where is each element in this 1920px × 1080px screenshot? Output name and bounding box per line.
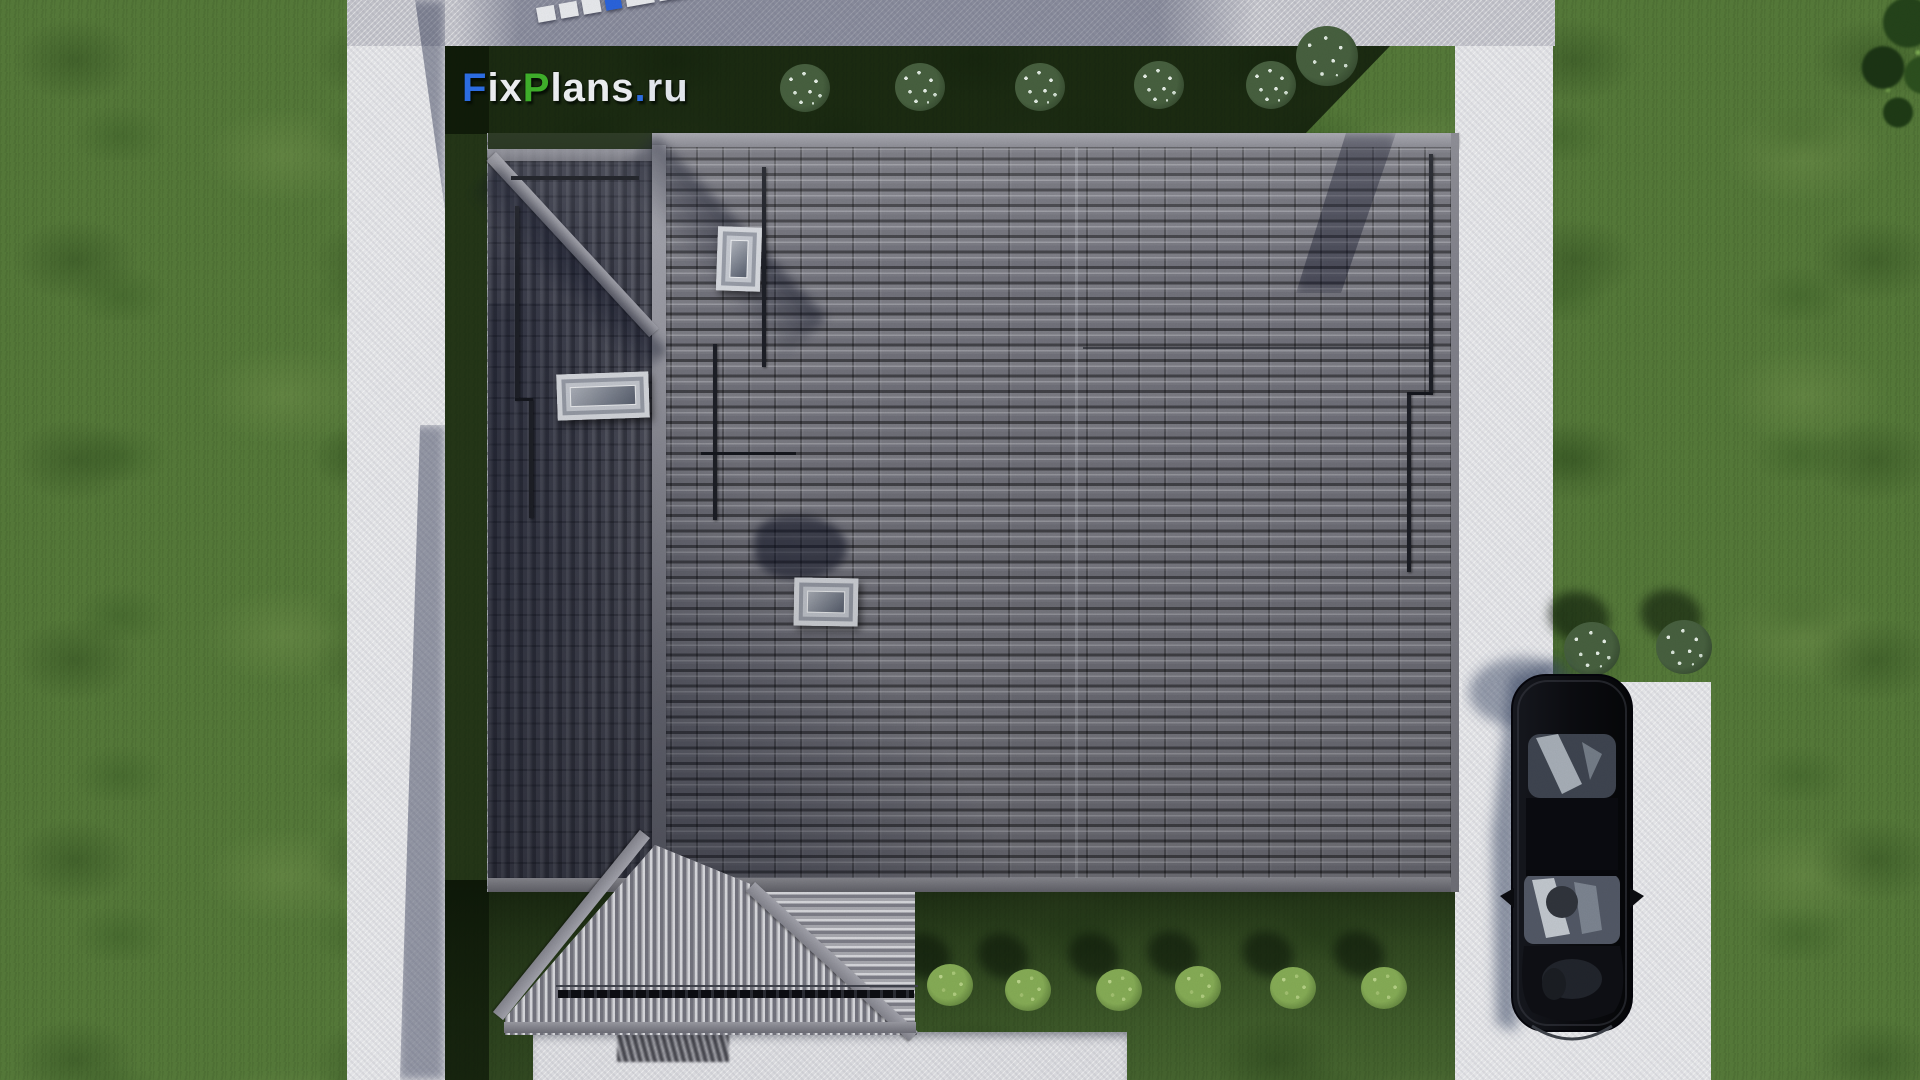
corner-tree: [1838, 0, 1920, 135]
flower-bush-top: [1134, 61, 1184, 109]
logo-letter: ix: [487, 66, 522, 110]
flower-bush-top: [780, 64, 830, 112]
flower-bush-top: [1246, 61, 1296, 109]
logo-letter: P: [523, 66, 551, 110]
porch-eave: [504, 1022, 916, 1033]
logo-letter: F: [462, 66, 487, 110]
logo-letter: ru: [647, 66, 689, 110]
logo-letter: .: [635, 66, 647, 110]
porch-snow-guard-rail: [556, 985, 918, 987]
site-render-canvas: FixPlans.ru: [0, 0, 1920, 1080]
green-bush: [1175, 966, 1221, 1008]
watermark-logo: FixPlans.ru: [462, 66, 689, 111]
flower-bush-top: [1015, 63, 1065, 111]
main-roof: [487, 133, 1459, 892]
doormat: [617, 1034, 729, 1062]
car-mirror-right: [1630, 888, 1644, 908]
car: [1462, 634, 1692, 1074]
white-block: [559, 1, 579, 19]
green-bush: [1361, 967, 1407, 1009]
white-block: [536, 5, 556, 23]
green-bush: [927, 964, 973, 1006]
flower-bush-corner: [1296, 26, 1358, 86]
flower-bush-top: [895, 63, 945, 111]
logo-letter: lans: [550, 66, 634, 110]
porch-snow-guard: [558, 990, 914, 998]
path-right: [1455, 46, 1553, 682]
car-glass-reflection: [1546, 886, 1578, 918]
green-bush: [1096, 969, 1142, 1011]
green-bush: [1270, 967, 1316, 1009]
car-roof: [1526, 798, 1618, 874]
roof-light-gradient: [488, 133, 1459, 892]
car-body: [1500, 675, 1644, 1039]
green-bush: [1005, 969, 1051, 1011]
